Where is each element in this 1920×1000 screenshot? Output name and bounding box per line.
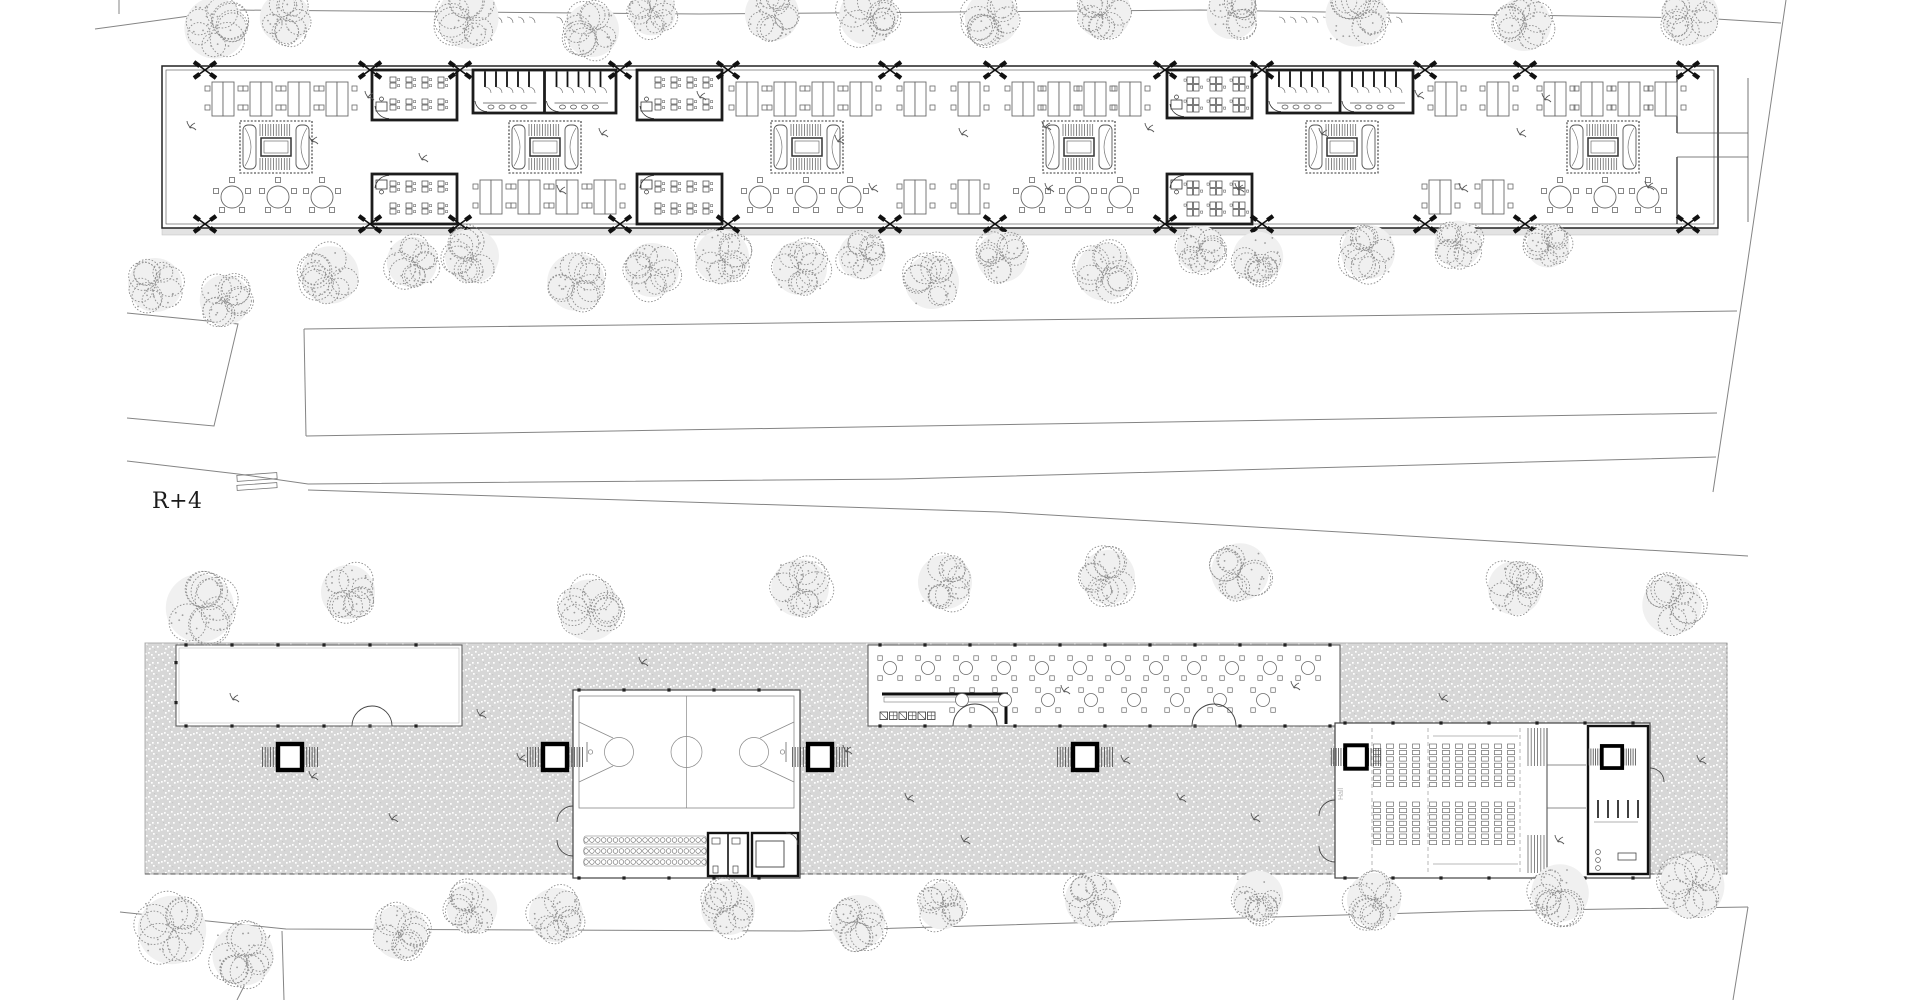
tree [260, 0, 311, 47]
basketball-court-block [557, 688, 800, 879]
tree [1078, 546, 1135, 607]
tree [184, 0, 248, 59]
stair-core [528, 744, 583, 770]
stair-core [1043, 121, 1115, 173]
stair-core [1567, 121, 1639, 173]
tree [526, 885, 585, 944]
tree [128, 258, 184, 313]
architectural-site-plan: Hall R+4 [0, 0, 1920, 1000]
crosswalk [237, 473, 277, 491]
tree [1231, 232, 1283, 287]
tree [558, 574, 625, 640]
tree [200, 274, 254, 327]
site-plan-svg: Hall [0, 0, 1920, 1000]
tree [1486, 561, 1543, 616]
stair-core [1306, 121, 1378, 173]
classroom [637, 70, 722, 120]
tree [770, 556, 834, 617]
tree [829, 895, 887, 952]
tree [1342, 871, 1401, 930]
tree [1207, 0, 1257, 39]
tree [209, 921, 274, 989]
tree [836, 0, 901, 47]
tree [695, 229, 752, 284]
stair-core [240, 121, 312, 173]
classroom [637, 174, 722, 224]
tree [627, 0, 678, 40]
classroom [372, 70, 457, 120]
level-label: R+4 [152, 489, 203, 514]
tree [321, 562, 375, 623]
stair-core [1589, 746, 1636, 768]
tree [960, 0, 1020, 47]
tree [1073, 240, 1138, 303]
tree [836, 230, 886, 279]
tree [1209, 543, 1272, 601]
classroom [372, 174, 457, 224]
courtyard-void [174, 643, 462, 727]
tree [1661, 0, 1719, 45]
tree [134, 891, 206, 964]
tree [547, 253, 605, 312]
tree [1231, 871, 1283, 926]
tree [434, 0, 499, 49]
stair-core [509, 121, 581, 173]
tree [1077, 0, 1131, 39]
seminar-room [1167, 174, 1252, 224]
tree [1642, 573, 1707, 636]
tree [562, 1, 619, 61]
tree [1325, 0, 1389, 47]
tree [1064, 873, 1121, 927]
lower-roof-terrace-plan: Hall [145, 643, 1727, 880]
stair-core [793, 744, 848, 770]
stair-core [771, 121, 843, 173]
tree [918, 553, 972, 612]
tree [373, 902, 431, 960]
tree [623, 243, 682, 302]
stair-core [263, 744, 318, 770]
tree [745, 0, 799, 41]
tree [1492, 0, 1555, 51]
seminar-room [1167, 70, 1252, 118]
tree [384, 234, 440, 289]
tree [166, 571, 238, 645]
cafe-terrace [868, 643, 1340, 727]
tree [297, 242, 359, 304]
tree [918, 880, 968, 932]
tree [903, 252, 959, 309]
tree [976, 232, 1028, 284]
hall-label: Hall [1338, 787, 1345, 800]
event-hall-block: Hall [1319, 721, 1664, 879]
stair-core [1331, 745, 1381, 768]
tree [701, 877, 755, 939]
tree [772, 238, 832, 295]
upper-floor-plan-r4 [162, 17, 1748, 235]
stair-core [1058, 744, 1113, 770]
tree [443, 879, 497, 933]
